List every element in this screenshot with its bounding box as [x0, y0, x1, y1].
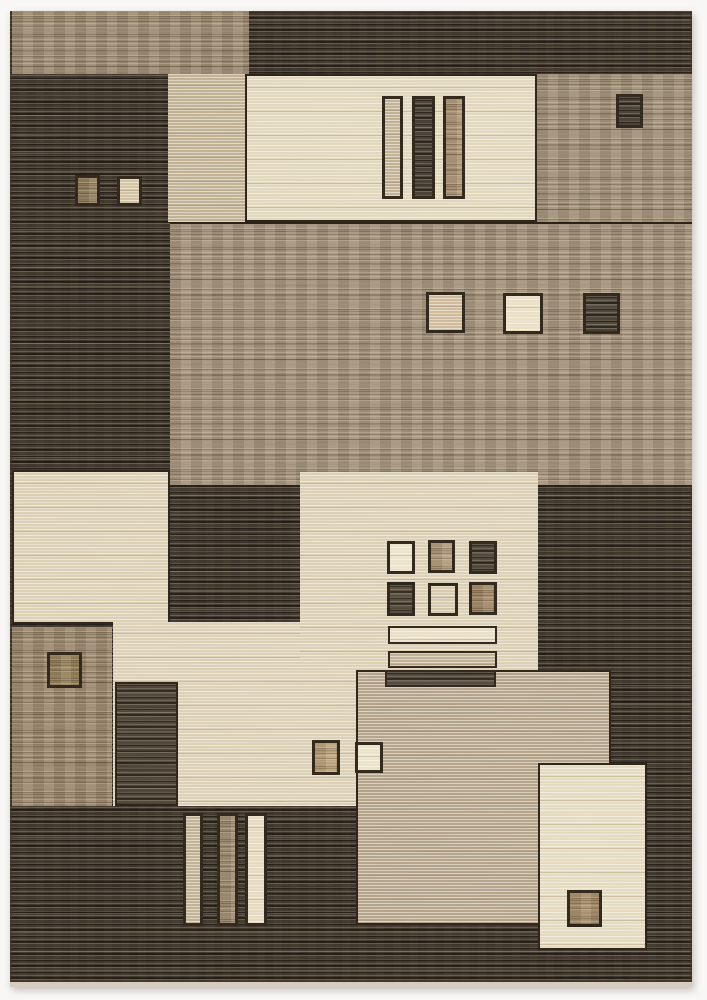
left-cream-panel: [12, 470, 170, 624]
top-bar-dark: [412, 96, 435, 199]
top-taupe-panel: [537, 74, 692, 222]
mid-square-dark: [583, 293, 620, 334]
grid-square-dark: [469, 541, 497, 574]
top-bar-tan: [382, 96, 403, 199]
beige-dark-patch: [115, 682, 178, 806]
bottom-bar-tan: [183, 813, 203, 926]
grid-square-dark2: [387, 582, 415, 616]
mid-square-tan: [426, 292, 465, 333]
grid-square-cream: [387, 541, 415, 574]
grid-square-beige: [428, 583, 458, 616]
rug-photo: [10, 11, 692, 987]
photo-canvas: [0, 0, 707, 1000]
pair-square-tan: [312, 740, 340, 775]
top-tan-band: [12, 11, 249, 74]
brown-block-square: [47, 652, 82, 688]
bottom-brown-square: [567, 890, 602, 927]
pair-square-cream: [355, 742, 383, 773]
top-bar-brown: [443, 96, 465, 199]
top-small-dark-square: [616, 94, 643, 128]
left-square-brown: [75, 175, 100, 206]
center-bar-cream: [388, 626, 497, 644]
center-bar-tan: [388, 651, 497, 668]
bottom-bar-cream: [245, 813, 267, 926]
mid-square-cream: [503, 293, 543, 334]
center-bar-dark: [385, 670, 496, 687]
grid-square-tan: [428, 540, 455, 573]
middle-field: [170, 222, 692, 485]
top-tan-column: [168, 74, 245, 222]
left-square-beige: [117, 176, 142, 206]
grid-square-brown: [469, 582, 497, 615]
bottom-bar-brown: [217, 813, 238, 926]
